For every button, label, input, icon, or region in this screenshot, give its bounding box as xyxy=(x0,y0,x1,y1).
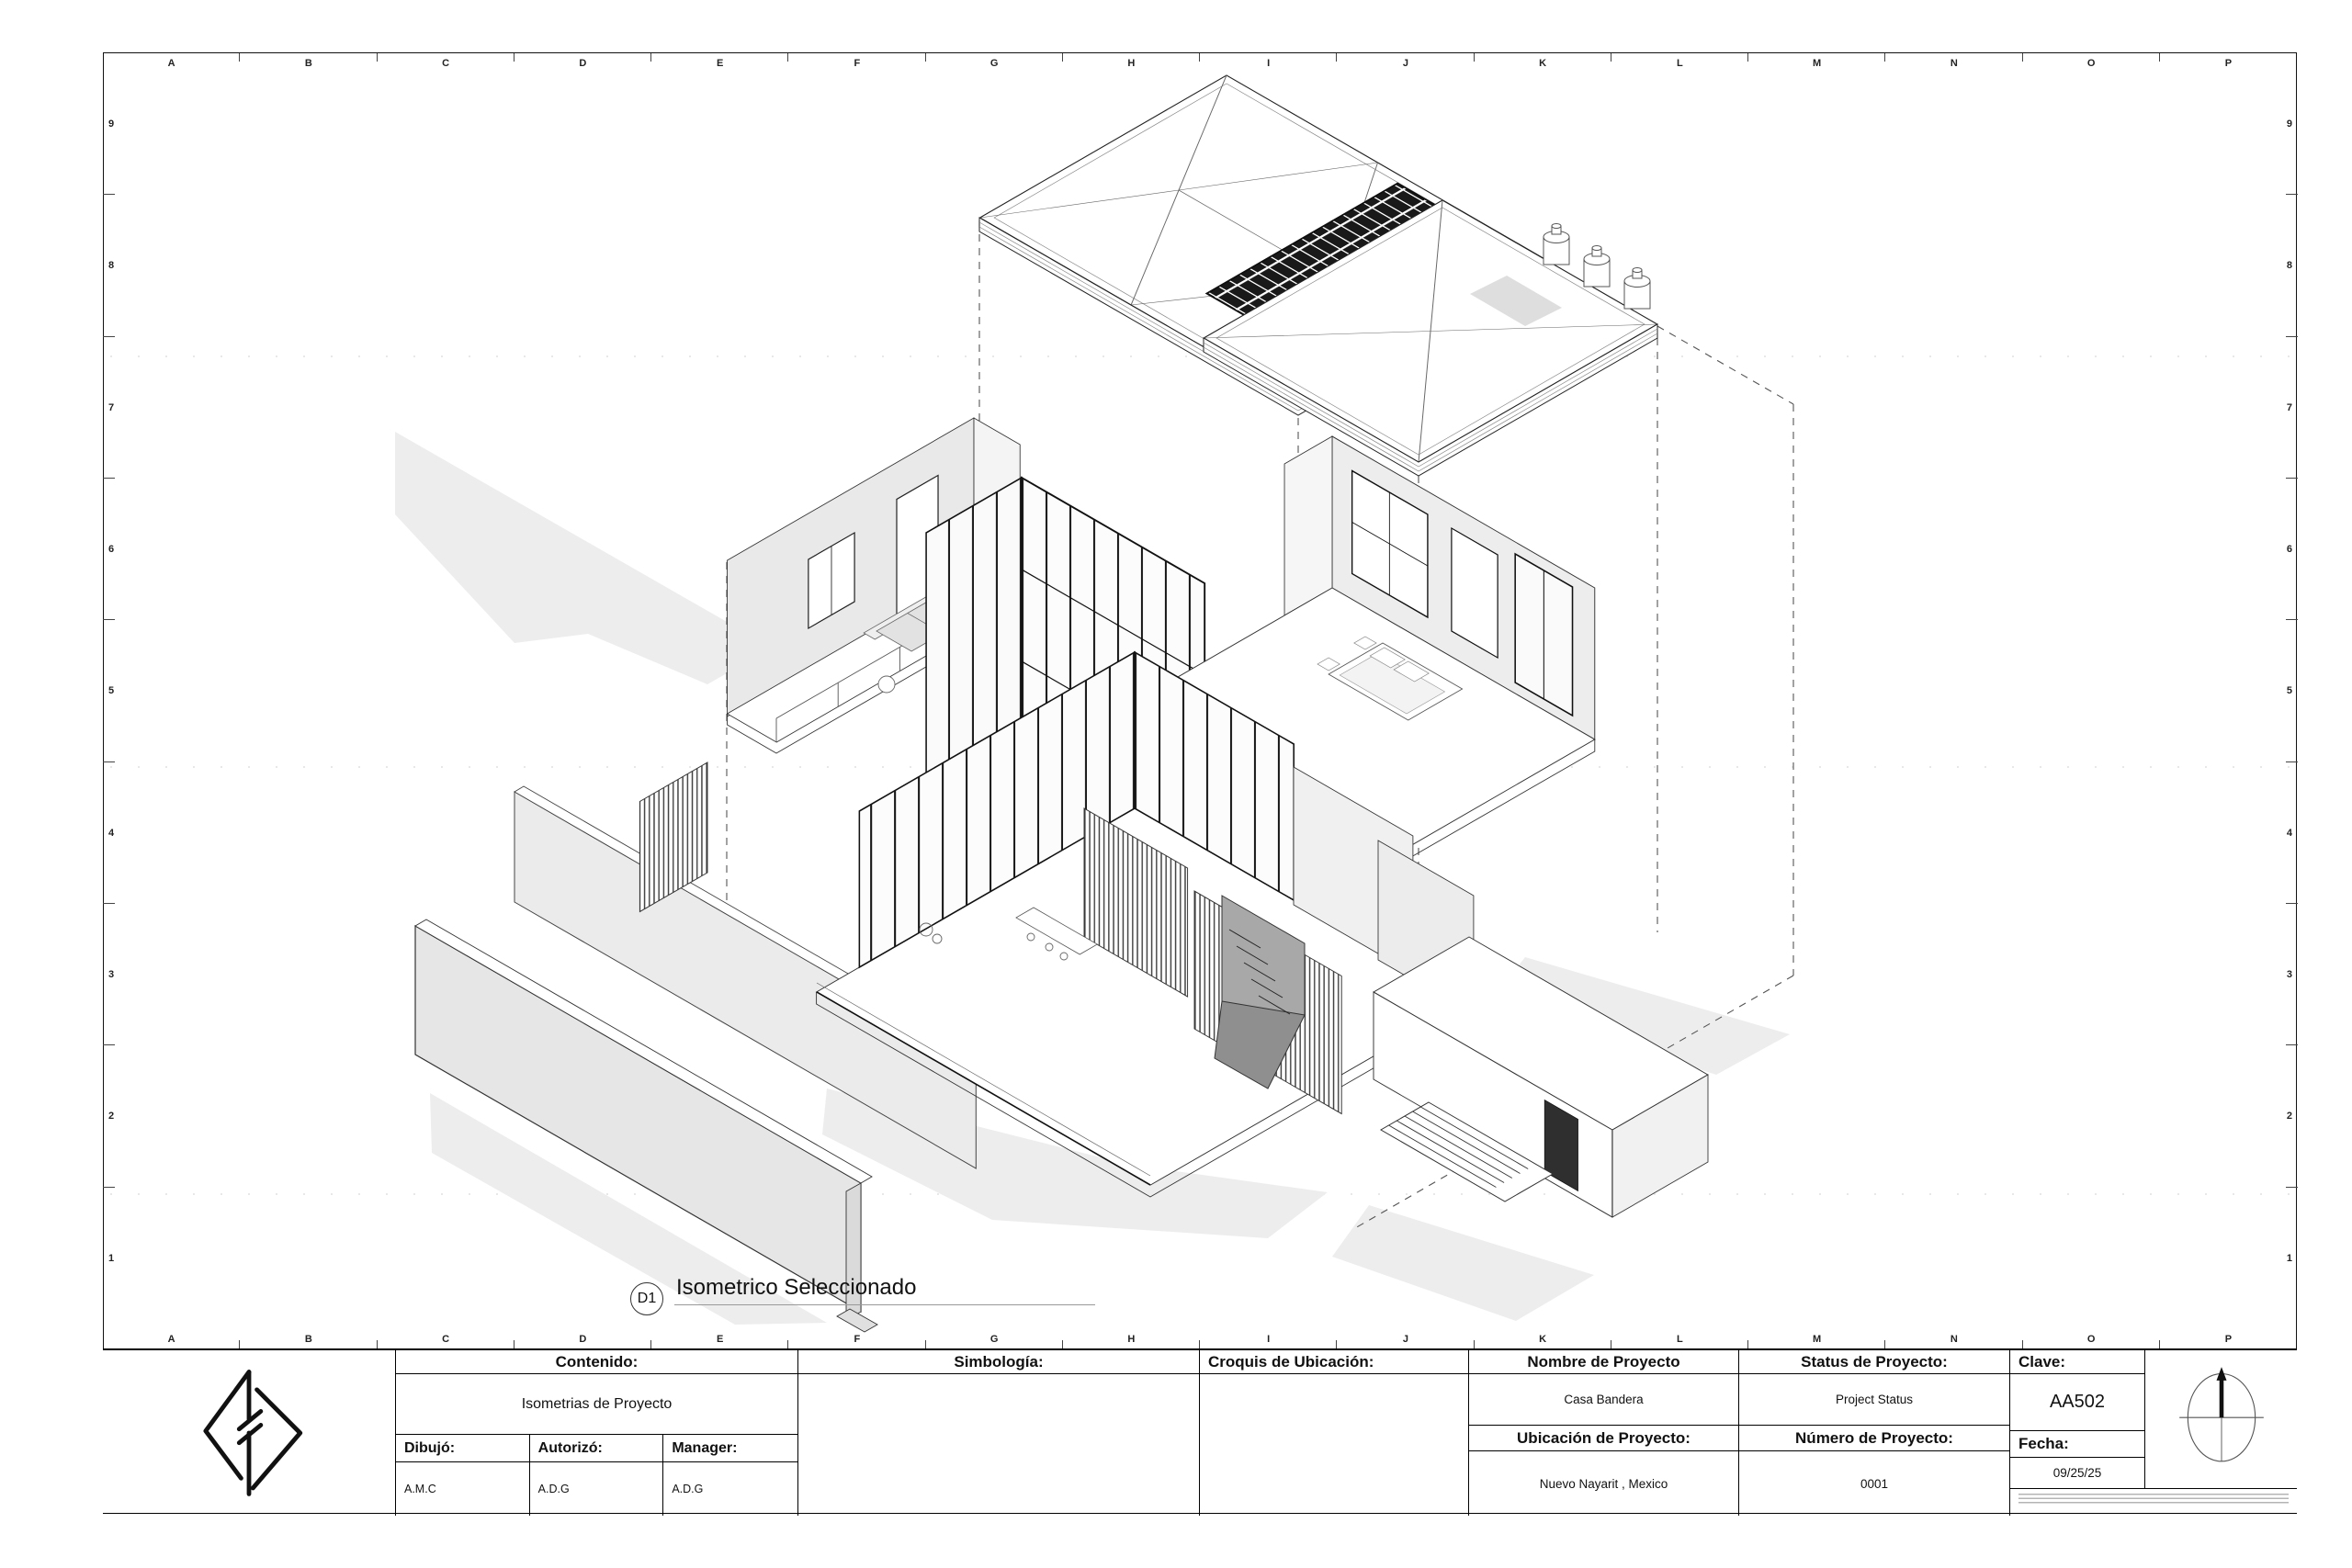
grid-letter: K xyxy=(1475,1329,1611,1348)
grid-letter: M xyxy=(1748,53,1885,73)
grid-letter-band-bottom: ABCDEFGHIJKLMNOP xyxy=(103,1329,2297,1348)
nombre-value: Casa Bandera xyxy=(1469,1374,1738,1426)
grid-letter: K xyxy=(1475,53,1611,73)
north-arrow-icon xyxy=(2171,1361,2272,1477)
grid-number: 5 xyxy=(2269,620,2297,761)
legal-fine-print xyxy=(2010,1488,2297,1516)
grid-letter: O xyxy=(2023,1329,2160,1348)
autorizo-label: Autorizó: xyxy=(530,1435,664,1461)
grid-number: 3 xyxy=(2269,904,2297,1045)
grid-letter: N xyxy=(1885,53,2022,73)
grid-number: 3 xyxy=(104,904,131,1045)
grid-letter: A xyxy=(103,1329,240,1348)
roof-level xyxy=(979,75,1657,476)
grid-number: 1 xyxy=(104,1188,131,1329)
grid-letter: O xyxy=(2023,53,2160,73)
autorizo-value: A.D.G xyxy=(530,1462,664,1516)
grid-letter: C xyxy=(378,53,514,73)
grid-letter: I xyxy=(1200,1329,1337,1348)
nombre-label: Nombre de Proyecto xyxy=(1469,1350,1738,1374)
grid-number: 8 xyxy=(2269,195,2297,336)
manager-value: A.D.G xyxy=(663,1462,797,1516)
grid-number: 1 xyxy=(2269,1188,2297,1329)
dibujo-value: A.M.C xyxy=(396,1462,530,1516)
status-label: Status de Proyecto: xyxy=(1739,1350,2009,1374)
simbologia-cell: Simbología: xyxy=(798,1350,1200,1516)
grid-letter: C xyxy=(378,1329,514,1348)
manager-label: Manager: xyxy=(663,1435,797,1461)
firm-logo-cell xyxy=(103,1350,396,1516)
grid-number: 9 xyxy=(2269,53,2297,195)
project-name-cell: Nombre de Proyecto Casa Bandera Ubicació… xyxy=(1469,1350,1739,1516)
grid-letter: B xyxy=(240,1329,377,1348)
grid-letter: F xyxy=(788,1329,925,1348)
croquis-label: Croquis de Ubicación: xyxy=(1200,1350,1468,1374)
grid-number: 6 xyxy=(2269,479,2297,620)
grid-letter: F xyxy=(788,53,925,73)
grid-number: 8 xyxy=(104,195,131,336)
grid-letter: B xyxy=(240,53,377,73)
contenido-label: Contenido: xyxy=(396,1350,797,1374)
grid-letter: D xyxy=(514,1329,651,1348)
clave-label: Clave: xyxy=(2010,1350,2144,1374)
croquis-cell: Croquis de Ubicación: xyxy=(1200,1350,1469,1516)
grid-letter: L xyxy=(1611,1329,1748,1348)
grid-number: 4 xyxy=(104,762,131,904)
grid-letter: I xyxy=(1200,53,1337,73)
grid-letter: G xyxy=(926,53,1063,73)
project-status-cell: Status de Proyecto: Project Status Númer… xyxy=(1739,1350,2010,1516)
dibujo-label: Dibujó: xyxy=(396,1435,530,1461)
grid-letter: N xyxy=(1885,1329,2022,1348)
grid-letter: H xyxy=(1063,53,1200,73)
grid-number-band-right: 987654321 xyxy=(2269,53,2297,1329)
contenido-cell: Contenido: Isometrias de Proyecto Dibujó… xyxy=(396,1350,798,1516)
simbologia-label: Simbología: xyxy=(798,1350,1199,1374)
fecha-label: Fecha: xyxy=(2010,1431,2144,1458)
coffee-table xyxy=(878,676,895,693)
view-tag-circle: D1 xyxy=(630,1282,663,1315)
grid-number: 7 xyxy=(104,337,131,479)
contenido-value: Isometrias de Proyecto xyxy=(396,1374,797,1435)
north-arrow-cell xyxy=(2145,1350,2297,1488)
grid-letter: G xyxy=(926,1329,1063,1348)
grid-number: 9 xyxy=(104,53,131,195)
drawing-sheet: ABCDEFGHIJKLMNOP ABCDEFGHIJKLMNOP 987654… xyxy=(0,0,2352,1568)
grid-number: 5 xyxy=(104,620,131,761)
grid-number: 2 xyxy=(104,1045,131,1187)
ubicacion-label: Ubicación de Proyecto: xyxy=(1469,1426,1738,1451)
grid-letter: L xyxy=(1611,53,1748,73)
grid-number: 7 xyxy=(2269,337,2297,479)
view-title-underline xyxy=(674,1304,1095,1305)
firm-logo-icon xyxy=(189,1364,309,1502)
grid-letter: D xyxy=(514,53,651,73)
grid-letter: P xyxy=(2160,1329,2297,1348)
grid-letter: J xyxy=(1337,53,1474,73)
title-block: Contenido: Isometrias de Proyecto Dibujó… xyxy=(103,1348,2297,1514)
grid-letter: H xyxy=(1063,1329,1200,1348)
numero-label: Número de Proyecto: xyxy=(1739,1426,2009,1451)
grid-number-band-left: 987654321 xyxy=(104,53,131,1329)
grid-number: 4 xyxy=(2269,762,2297,904)
grid-letter: J xyxy=(1337,1329,1474,1348)
ubicacion-value: Nuevo Nayarit , Mexico xyxy=(1469,1451,1738,1516)
fecha-value: 09/25/25 xyxy=(2010,1458,2144,1488)
grid-letter: E xyxy=(651,1329,788,1348)
grid-number: 6 xyxy=(104,479,131,620)
view-title: Isometrico Seleccionado xyxy=(676,1275,916,1301)
grid-letter: M xyxy=(1748,1329,1885,1348)
clave-fecha-cell: Clave: AA502 Fecha: 09/25/25 xyxy=(2010,1350,2145,1488)
clave-value: AA502 xyxy=(2010,1374,2144,1431)
grid-letter: E xyxy=(651,53,788,73)
grid-letter-band-top: ABCDEFGHIJKLMNOP xyxy=(103,53,2297,73)
grid-number: 2 xyxy=(2269,1045,2297,1187)
numero-value: 0001 xyxy=(1739,1451,2009,1516)
status-value: Project Status xyxy=(1739,1374,2009,1426)
